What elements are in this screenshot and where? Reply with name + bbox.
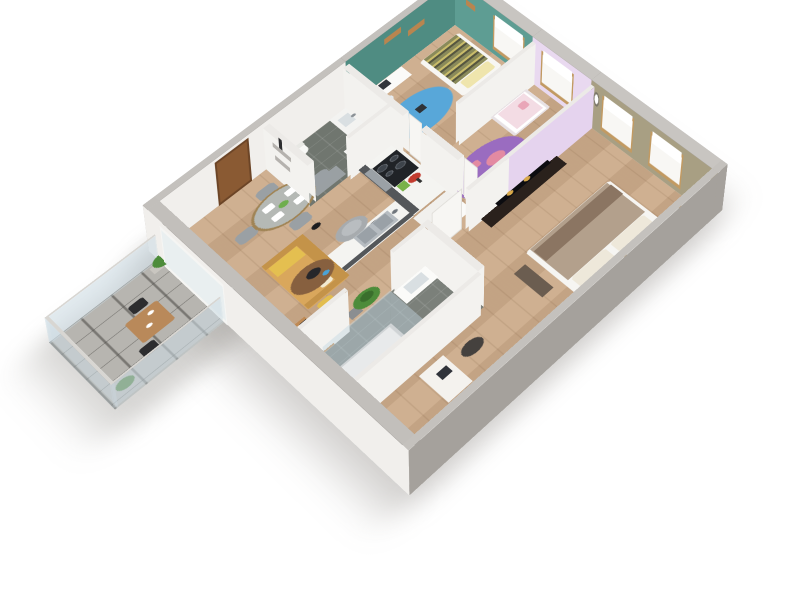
floor-plan-stage <box>0 0 802 600</box>
